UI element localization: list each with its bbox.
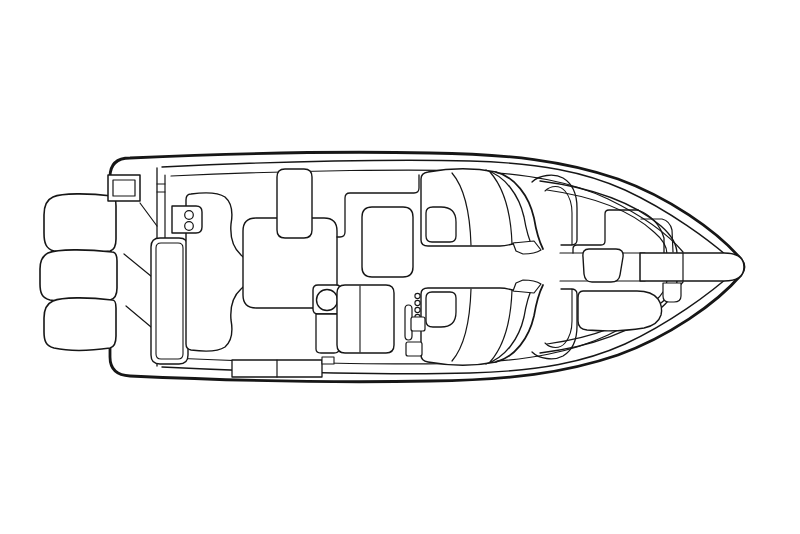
wetbar-cabinet	[316, 314, 339, 353]
console-seat-mirrored	[426, 292, 456, 327]
gunwale-step-small	[322, 357, 334, 364]
bow-seat-forward	[578, 291, 662, 331]
boat-top-view-line-art	[0, 0, 800, 534]
outboard-motor-2	[40, 250, 117, 302]
transom-plate	[172, 206, 202, 233]
outboard-motor-1	[44, 194, 116, 253]
boat-deck-plan-diagram	[0, 0, 800, 534]
bow-step-lower	[663, 283, 681, 302]
outboard-motor-3	[44, 298, 116, 350]
cockpit-seat-backrest	[277, 169, 312, 238]
sink-basin	[317, 290, 338, 311]
console-seat	[426, 207, 456, 242]
cockpit-table	[362, 207, 413, 277]
console-latch-lower	[406, 342, 422, 356]
helm-seat	[337, 285, 394, 353]
anchor-platform-strip	[640, 253, 744, 281]
console-latch	[411, 317, 425, 331]
bow-cushion	[583, 249, 623, 282]
